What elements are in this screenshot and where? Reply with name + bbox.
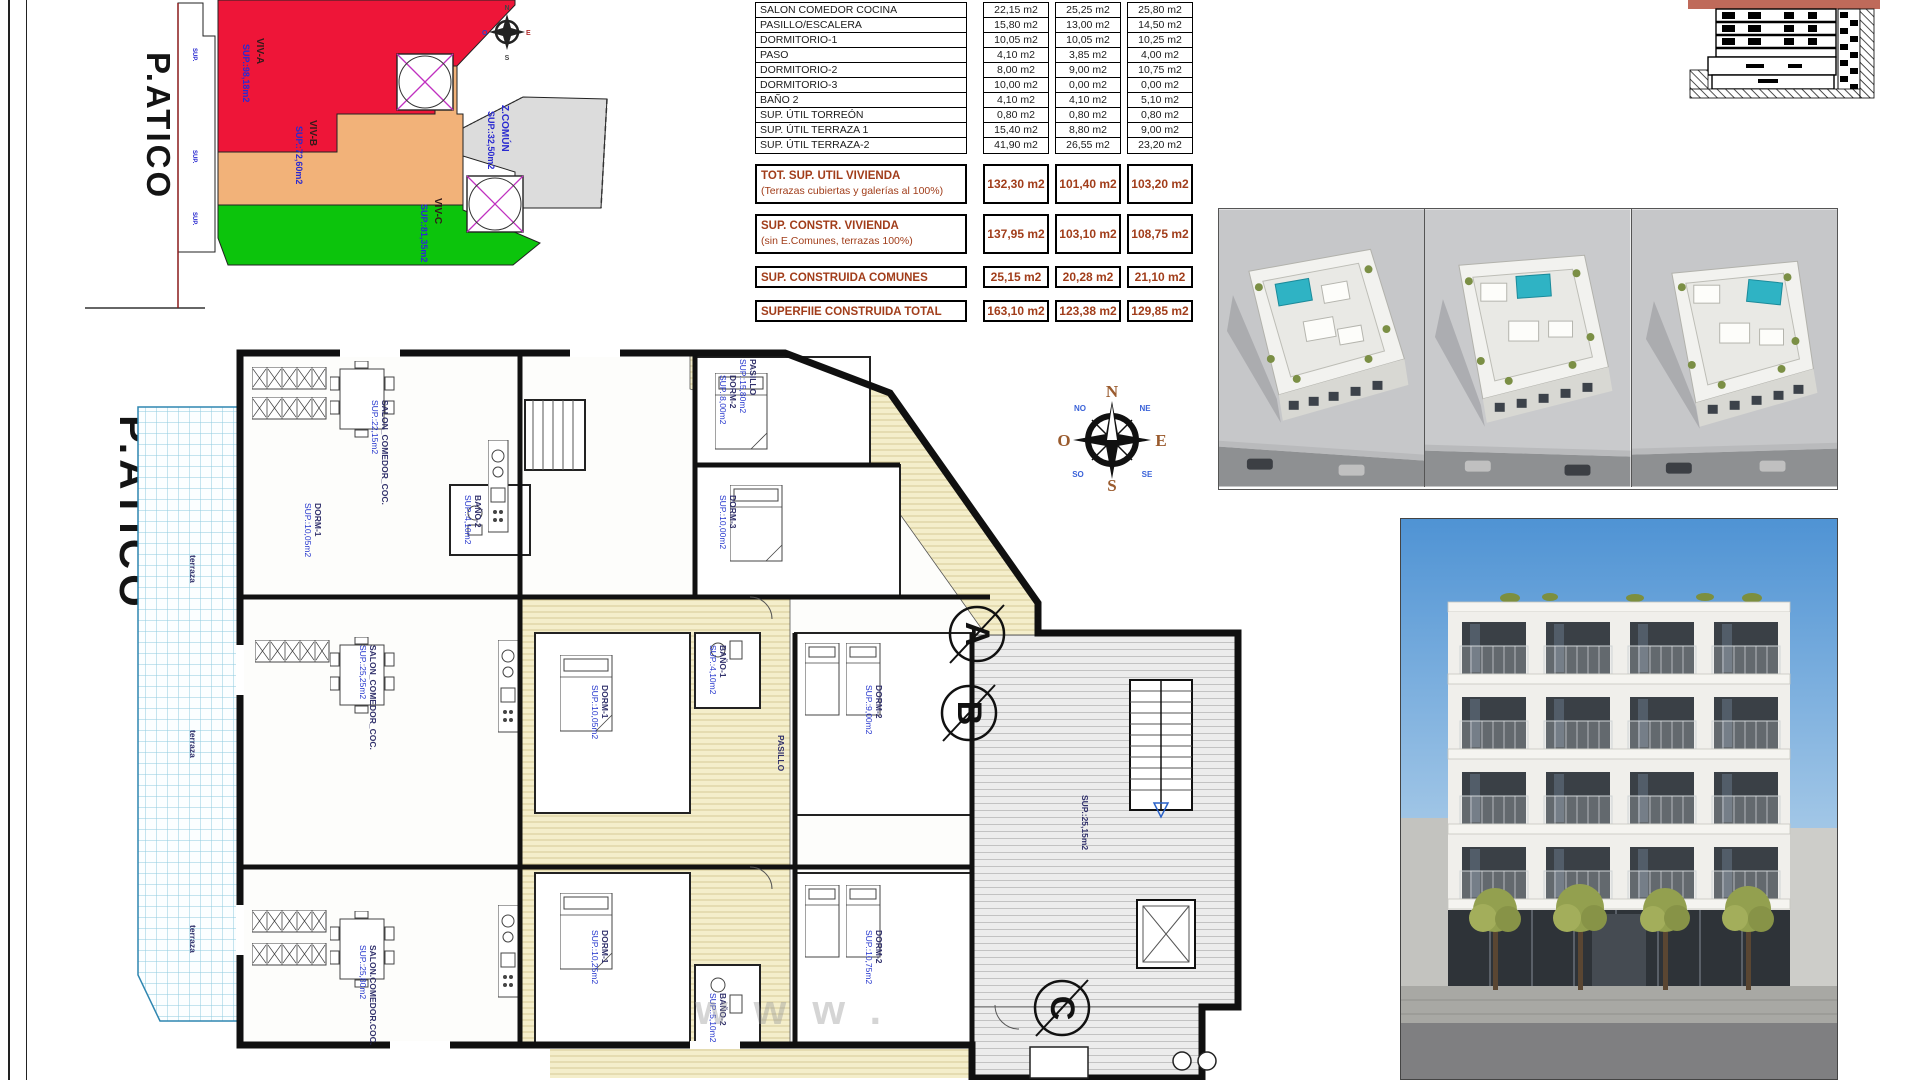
table-cell: 163,10 m2 (985, 302, 1047, 320)
table-cell: 4,10 m2 (984, 48, 1048, 63)
table-cell: SUP. CONSTR. VIVIENDA(sin E.Comunes, ter… (757, 216, 965, 252)
table-value-column: 25,25 m213,00 m210,05 m23,85 m29,00 m20,… (1055, 2, 1121, 322)
table-value-column: 25,80 m214,50 m210,25 m24,00 m210,75 m20… (1127, 2, 1193, 322)
svg-text:DORM-1: DORM-1 (600, 930, 610, 964)
aerial-render-1 (1219, 209, 1424, 487)
svg-text:DORM-2: DORM-2 (728, 375, 738, 409)
elevator (1137, 900, 1195, 968)
table-cell: 8,80 m2 (1056, 123, 1120, 138)
svg-text:DORM-1: DORM-1 (313, 503, 323, 537)
svg-text:terraza: terraza (188, 555, 198, 583)
label-text: SUP. (191, 48, 197, 62)
table-cell: 26,55 m2 (1056, 138, 1120, 153)
svg-text:DORM-2: DORM-2 (874, 685, 884, 719)
label-text: VIV-B (307, 120, 318, 146)
elevation-section (1688, 0, 1880, 100)
table-cell: SALON COMEDOR COCINA (756, 3, 966, 18)
table-cell: DORMITORIO-2 (756, 63, 966, 78)
table-cell: 14,50 m2 (1128, 18, 1192, 33)
room-label: PASILLO (776, 735, 786, 772)
table-cell: 101,40 m2 (1057, 166, 1119, 202)
table-label-column: SALON COMEDOR COCINAPASILLO/ESCALERADORM… (755, 2, 967, 322)
unit-letter-a: A (958, 622, 996, 647)
table-cell: 15,80 m2 (984, 18, 1048, 33)
table-cell: 9,00 m2 (1128, 123, 1192, 138)
common-zone (974, 635, 1238, 1078)
svg-text:BAÑO-1: BAÑO-1 (718, 645, 728, 678)
table-cell: DORMITORIO-3 (756, 78, 966, 93)
svg-text:SUP.:4,10m2: SUP.:4,10m2 (463, 495, 473, 545)
room-label: terraza (188, 730, 198, 758)
label-text: SUP.:81,35m2 (419, 204, 429, 262)
floor-plan: P.ATICO (90, 345, 1245, 1080)
svg-text:PASILLO: PASILLO (748, 359, 758, 396)
svg-text:SUP.:10,00m2: SUP.:10,00m2 (718, 495, 728, 549)
svg-text:SUP.:25,25m2: SUP.:25,25m2 (358, 645, 368, 699)
table-cell: 3,85 m2 (1056, 48, 1120, 63)
drawing-sheet: P.ATICO SUP.SUP.SUP. VIV-ASUP.: (0, 0, 1920, 1080)
table-cell: 0,80 m2 (1056, 108, 1120, 123)
table-cell: SUP. ÚTIL TERRAZA 1 (756, 123, 966, 138)
area-table: SALON COMEDOR COCINAPASILLO/ESCALERADORM… (755, 0, 1205, 312)
skylight-symbol (397, 54, 453, 110)
site-plan-title: P.ATICO (140, 52, 177, 200)
terrace-strip (138, 407, 238, 1021)
label-text: SUP. (191, 212, 197, 226)
table-cell: 4,10 m2 (1056, 93, 1120, 108)
table-cell: 123,38 m2 (1057, 302, 1119, 320)
label-text: SUP. (191, 150, 197, 164)
room-label: terraza (188, 555, 198, 583)
table-cell: 4,00 m2 (1128, 48, 1192, 63)
terrace-strip-outline: SUP.SUP.SUP. (178, 3, 215, 308)
label-text: Z.COMÚN (499, 105, 512, 152)
table-cell: 10,25 m2 (1128, 33, 1192, 48)
table-cell: 0,80 m2 (1128, 108, 1192, 123)
table-cell: 0,00 m2 (1056, 78, 1120, 93)
table-cell: 20,28 m2 (1057, 268, 1119, 286)
table-cell: 25,80 m2 (1128, 3, 1192, 18)
table-cell: 4,10 m2 (984, 93, 1048, 108)
table-cell: BAÑO 2 (756, 93, 966, 108)
watermark: www. (695, 986, 907, 1034)
skylight-symbol (467, 176, 523, 232)
table-cell: 5,10 m2 (1128, 93, 1192, 108)
svg-text:SUP.:25,80m2: SUP.:25,80m2 (358, 945, 368, 999)
table-cell: 129,85 m2 (1129, 302, 1191, 320)
sheet-frame-line (8, 0, 10, 1080)
table-cell: 10,05 m2 (984, 33, 1048, 48)
table-cell: SUP. CONSTRUIDA COMUNES (757, 268, 965, 286)
table-cell: PASILLO/ESCALERA (756, 18, 966, 33)
svg-text:SUP.:10,25m2: SUP.:10,25m2 (590, 930, 600, 984)
table-cell: 0,80 m2 (984, 108, 1048, 123)
table-cell: TOT. SUP. UTIL VIVIENDA(Terrazas cubiert… (757, 166, 965, 202)
table-cell: 21,10 m2 (1129, 268, 1191, 286)
zone-polygons (218, 0, 607, 265)
svg-text:BAÑO-2: BAÑO-2 (473, 495, 483, 528)
svg-text:terraza: terraza (188, 730, 198, 758)
table-cell: 10,75 m2 (1128, 63, 1192, 78)
table-cell: SUP. ÚTIL TERRAZA-2 (756, 138, 966, 153)
label-text: VIV-C (432, 198, 443, 224)
svg-text:S: S (505, 55, 510, 62)
table-cell: 22,15 m2 (984, 3, 1048, 18)
table-cell: PASO (756, 48, 966, 63)
label-text: SUP.:32,50m2 (486, 111, 496, 169)
room-label: SUP.:25,15m2 (1080, 795, 1090, 850)
table-cell: 132,30 m2 (985, 166, 1047, 202)
table-cell: 137,95 m2 (985, 216, 1047, 252)
svg-text:DORM-2: DORM-2 (874, 930, 884, 964)
table-cell: 103,20 m2 (1129, 166, 1191, 202)
table-cell: DORMITORIO-1 (756, 33, 966, 48)
table-cell: 23,20 m2 (1128, 138, 1192, 153)
table-cell: SUPERFIIE CONSTRUIDA TOTAL (757, 302, 965, 320)
svg-text:SALON_COMEDOR_COC.: SALON_COMEDOR_COC. (380, 400, 390, 505)
site-plan: P.ATICO SUP.SUP.SUP. VIV-ASUP.: (85, 0, 615, 322)
svg-text:SUP.:8,00m2: SUP.:8,00m2 (718, 375, 728, 425)
table-cell: 9,00 m2 (1056, 63, 1120, 78)
unit-letter-c: C (1043, 996, 1081, 1021)
facade-render (1400, 518, 1838, 1080)
svg-text:PASILLO: PASILLO (776, 735, 786, 772)
aerial-render-3 (1631, 209, 1837, 487)
table-cell: 15,40 m2 (984, 123, 1048, 138)
table-cell: 10,00 m2 (984, 78, 1048, 93)
table-cell: 10,05 m2 (1056, 33, 1120, 48)
table-cell: 13,00 m2 (1056, 18, 1120, 33)
table-cell: 108,75 m2 (1129, 216, 1191, 252)
svg-text:E: E (526, 30, 531, 37)
label-text: SUP.:98,18m2 (241, 44, 251, 102)
room-label: terraza (188, 925, 198, 953)
table-cell: 25,25 m2 (1056, 3, 1120, 18)
svg-text:N: N (504, 5, 509, 12)
svg-text:SUP.:10,05m2: SUP.:10,05m2 (590, 685, 600, 739)
svg-text:SUP.:25,15m2: SUP.:25,15m2 (1080, 795, 1090, 850)
label-text: SUP.:72,60m2 (294, 126, 304, 184)
svg-text:SALON.COMEDOR.COC.: SALON.COMEDOR.COC. (368, 945, 378, 1045)
table-cell: 41,90 m2 (984, 138, 1048, 153)
svg-text:SUP.:15,80m2: SUP.:15,80m2 (738, 359, 748, 413)
svg-text:DORM-1: DORM-1 (600, 685, 610, 719)
svg-text:SUP.:4,10m2: SUP.:4,10m2 (708, 645, 718, 695)
common-stairs (1130, 680, 1192, 817)
aerial-render-2 (1424, 209, 1630, 487)
svg-text:DORM-3: DORM-3 (728, 495, 738, 529)
sheet-frame-line (26, 0, 27, 1080)
svg-text:SUP.:10,75m2: SUP.:10,75m2 (864, 930, 874, 984)
svg-text:SUP.:10,05m2: SUP.:10,05m2 (303, 503, 313, 557)
aerial-renders-strip (1218, 208, 1838, 490)
label-text: VIV-A (254, 38, 265, 64)
table-cell: 103,10 m2 (1057, 216, 1119, 252)
table-cell: SUP. ÚTIL TORREÓN (756, 108, 966, 123)
svg-text:O: O (482, 30, 488, 37)
table-cell: 25,15 m2 (985, 268, 1047, 286)
table-cell: 8,00 m2 (984, 63, 1048, 78)
svg-text:SALON_COMEDOR_COC.: SALON_COMEDOR_COC. (368, 645, 378, 750)
svg-text:terraza: terraza (188, 925, 198, 953)
table-value-column: 22,15 m215,80 m210,05 m24,10 m28,00 m210… (983, 2, 1049, 322)
svg-text:SUP.:22,15m2: SUP.:22,15m2 (370, 400, 380, 454)
table-cell: 0,00 m2 (1128, 78, 1192, 93)
svg-text:SUP.:9,00m2: SUP.:9,00m2 (864, 685, 874, 735)
unit-letter-b: B (950, 701, 988, 726)
